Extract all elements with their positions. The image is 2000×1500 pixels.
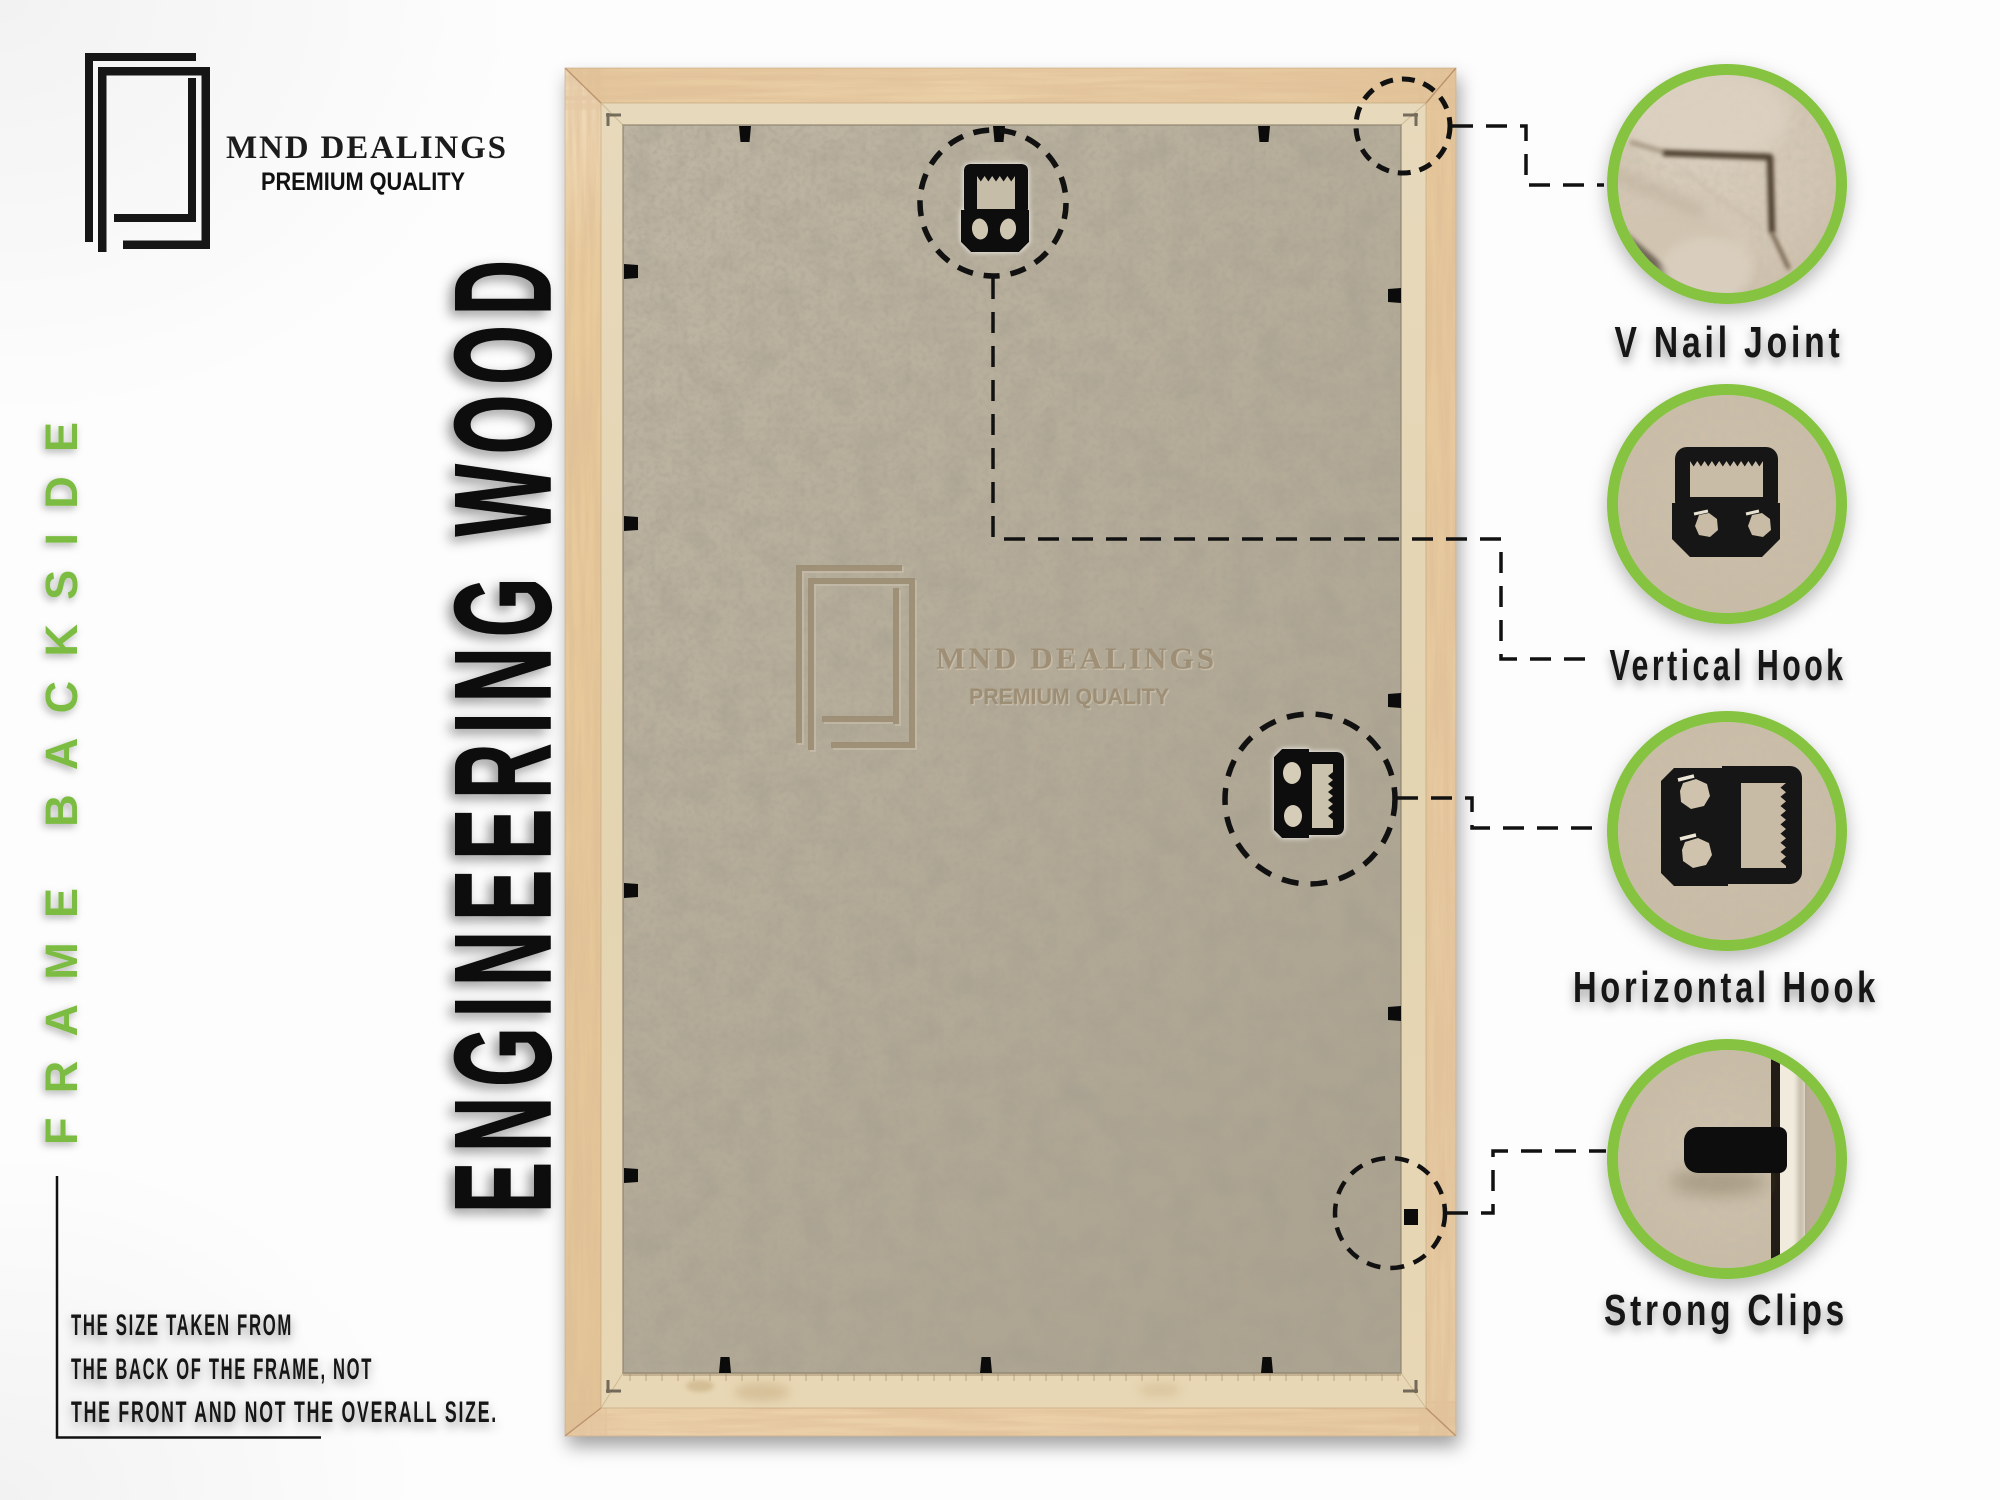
svg-text:PREMIUM QUALITY: PREMIUM QUALITY [261, 168, 465, 196]
svg-text:ENGINEERING WOOD: ENGINEERING WOOD [427, 250, 580, 1213]
svg-text:MND DEALINGS: MND DEALINGS [226, 130, 506, 166]
svg-text:THE BACK OF THE FRAME, NOT: THE BACK OF THE FRAME, NOT [71, 1353, 373, 1386]
svg-text:THE SIZE TAKEN FROM: THE SIZE TAKEN FROM [71, 1309, 293, 1342]
svg-text:THE FRONT AND NOT THE OVERALL: THE FRONT AND NOT THE OVERALL SIZE. [71, 1396, 498, 1429]
svg-text:Vertical Hook: Vertical Hook [1610, 641, 1847, 690]
svg-text:V Nail Joint: V Nail Joint [1615, 318, 1844, 367]
svg-text:Horizontal Hook: Horizontal Hook [1573, 963, 1879, 1012]
svg-text:Strong Clips: Strong Clips [1604, 1286, 1848, 1335]
svg-text:PREMIUM QUALITY: PREMIUM QUALITY [969, 684, 1169, 709]
svg-text:MND DEALINGS: MND DEALINGS [936, 641, 1214, 676]
